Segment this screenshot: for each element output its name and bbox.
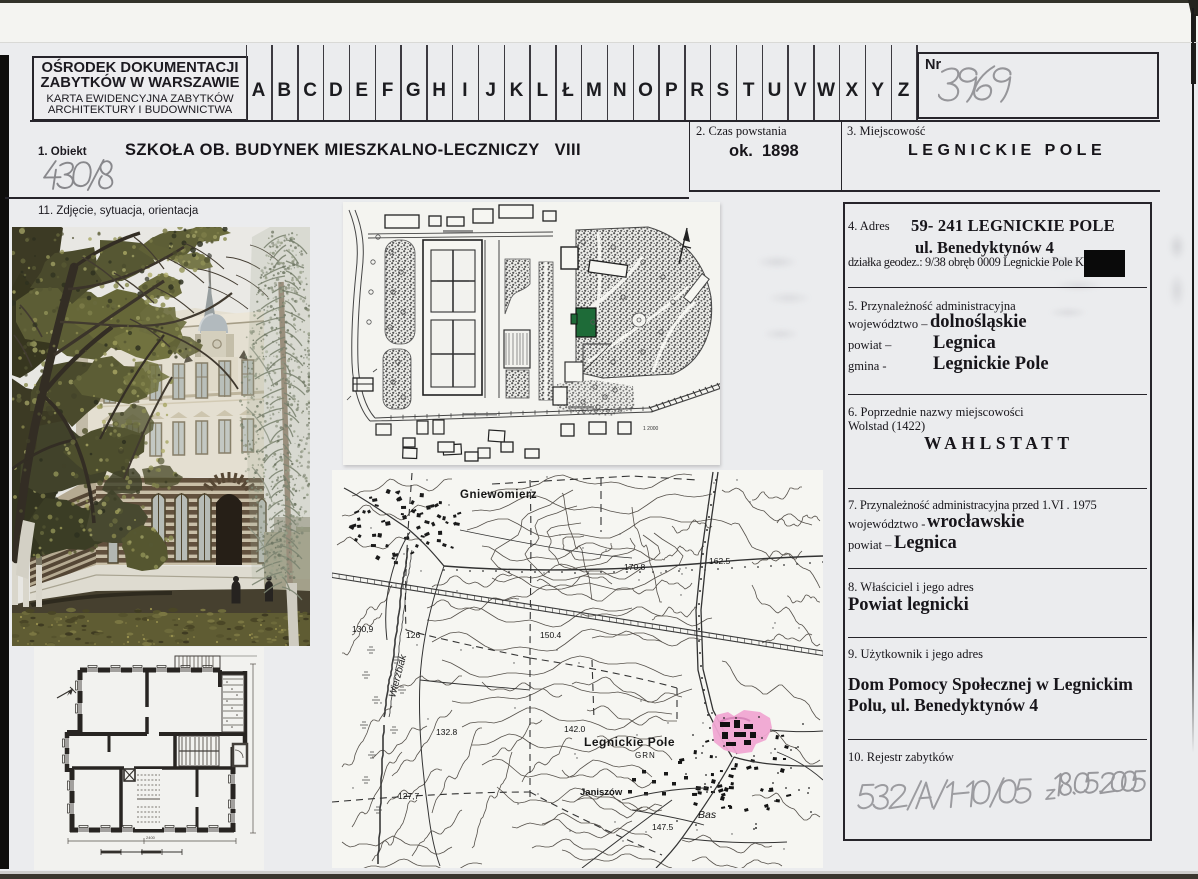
- svg-text:150.4: 150.4: [540, 630, 562, 640]
- svg-text:130,9: 130,9: [352, 624, 374, 634]
- svg-text:GRN: GRN: [635, 751, 656, 760]
- svg-text:Janiszów: Janiszów: [580, 787, 623, 798]
- svg-text:Gniewomierz: Gniewomierz: [460, 489, 537, 501]
- svg-text:2400: 2400: [146, 835, 156, 840]
- svg-text:1 2000: 1 2000: [643, 426, 659, 432]
- svg-text:132.8: 132.8: [436, 727, 458, 737]
- svg-text:126: 126: [406, 630, 420, 640]
- svg-text:142.0: 142.0: [564, 724, 586, 734]
- svg-text:127,7: 127,7: [398, 791, 420, 801]
- svg-text:147.5: 147.5: [652, 822, 674, 832]
- svg-text:170.8: 170.8: [624, 562, 646, 572]
- svg-text:162.5: 162.5: [709, 556, 731, 566]
- svg-text:Legnickie Pole: Legnickie Pole: [584, 735, 675, 749]
- svg-text:Bas: Bas: [698, 809, 717, 821]
